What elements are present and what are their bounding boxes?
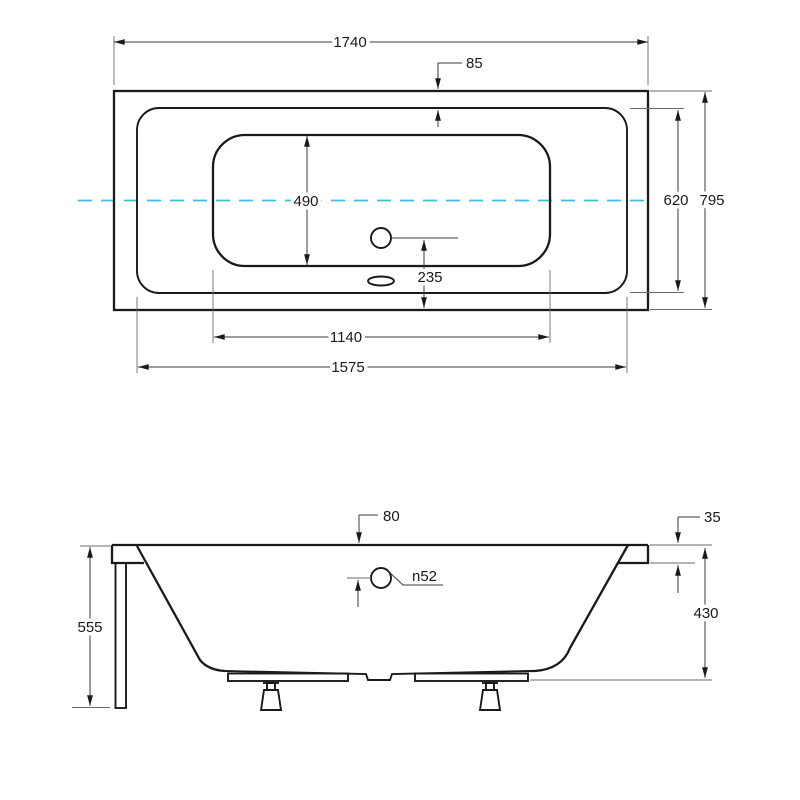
left-support-rail <box>228 674 348 682</box>
dim-rim-offset-label: 85 <box>466 55 483 72</box>
dim-drain-offset-label: 80 <box>383 508 400 525</box>
right-support-rail <box>415 674 528 682</box>
side-view: n52 80 35 430 555 <box>72 508 721 710</box>
drawing-canvas: 1740 85 490 235 620 795 1140 1575 <box>0 0 800 800</box>
dim-basin-length-label: 1140 <box>330 329 362 346</box>
dim-overall-length-label: 1740 <box>333 34 366 51</box>
overflow-hole-plan <box>368 277 394 286</box>
left-foot <box>261 683 281 710</box>
tub-left-wall <box>137 546 225 671</box>
tub-right-wall <box>530 545 628 671</box>
dim-overall-width-label: 795 <box>699 192 724 209</box>
dim-inner-width-label: 620 <box>663 192 688 209</box>
tub-bottom <box>225 671 530 680</box>
bathtub-technical-drawing: 1740 85 490 235 620 795 1140 1575 <box>0 0 800 800</box>
dim-drain-diameter-label: n52 <box>412 568 437 585</box>
dim-rim-height-label: 35 <box>704 509 721 526</box>
dim-inner-length-label: 1575 <box>331 359 364 376</box>
dim-basin-width-label: 490 <box>293 193 318 210</box>
dim-inner-depth-label: 430 <box>693 605 718 622</box>
top-view: 1740 85 490 235 620 795 1140 1575 <box>78 34 725 376</box>
drain-hole-plan <box>371 228 391 248</box>
front-panel <box>116 563 127 708</box>
right-foot <box>480 683 500 710</box>
dim-total-height-label: 555 <box>77 619 102 636</box>
dim-drain-to-edge-label: 235 <box>417 269 442 286</box>
